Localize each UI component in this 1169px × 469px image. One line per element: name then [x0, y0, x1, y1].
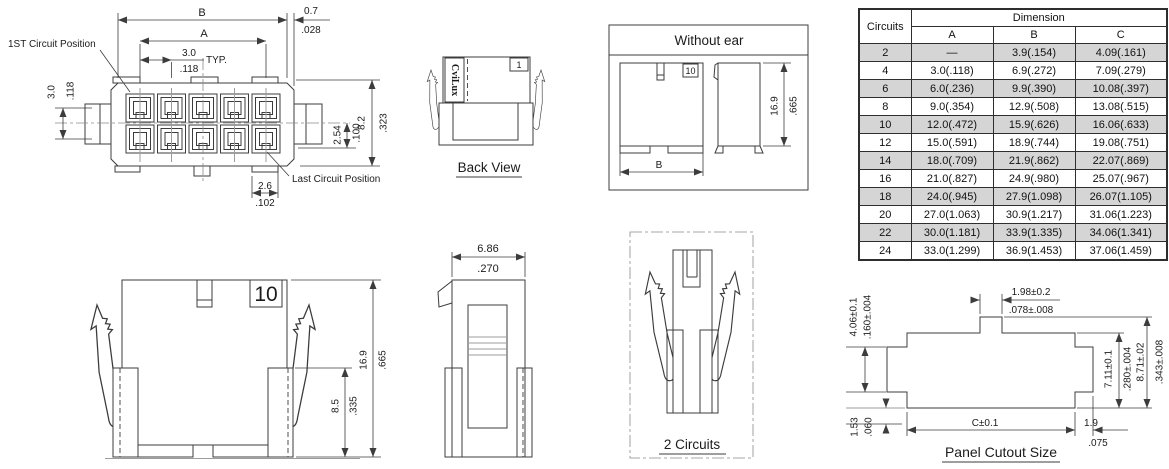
table-cell: 12 — [859, 134, 911, 152]
dim-edge-in: .028 — [301, 25, 321, 36]
table-cell: 34.06(1.341) — [1075, 224, 1167, 242]
table-cell: 31.06(1.223) — [1075, 206, 1167, 224]
lower-mm: 1.53 — [850, 417, 861, 437]
table-cell: 33.9(1.335) — [993, 224, 1075, 242]
col-header-circuits: Circuits — [859, 9, 911, 44]
table-cell: 16.06(.633) — [1075, 116, 1167, 134]
table-row: 1012.0(.472)15.9(.626)16.06(.633) — [859, 116, 1167, 134]
cavity-in: .102 — [255, 198, 275, 209]
table-row: 89.0(.354)12.9(.508)13.08(.515) — [859, 98, 1167, 116]
two-circuits-title: 2 Circuits — [664, 437, 721, 452]
side-profile-body — [438, 280, 532, 457]
front-view-body — [55, 58, 350, 182]
pitch-mm: 3.0 — [182, 48, 196, 59]
without-ear-title: Without ear — [674, 33, 744, 48]
table-cell: 25.07(.967) — [1075, 170, 1167, 188]
connector-datasheet-drawing: B 0.7 .028 A 3.0 .118 TYP. 3.0 .118 2.54… — [0, 0, 1169, 469]
table-cell: 24 — [859, 242, 911, 261]
table-cell: 6 — [859, 80, 911, 98]
col-header-b: B — [993, 27, 1075, 44]
table-cell: 26.07(1.105) — [1075, 188, 1167, 206]
table-cell: 27.9(1.098) — [993, 188, 1075, 206]
table-cell: 4.09(.161) — [1075, 44, 1167, 62]
table-cell: 4 — [859, 62, 911, 80]
table-cell: 12.9(.508) — [993, 98, 1075, 116]
table-cell: 27.0(1.063) — [911, 206, 993, 224]
table-row: 2027.0(1.063)30.9(1.217)31.06(1.223) — [859, 206, 1167, 224]
front-with-ears-drawing: 10 8.5 .335 16.9 .665 — [55, 270, 405, 469]
pin10-label: 10 — [254, 283, 277, 306]
dim-b-label: B — [656, 160, 663, 171]
row-pitch-in: .118 — [66, 81, 77, 100]
table-cell: 21.9(.862) — [993, 152, 1075, 170]
table-cell: 13.08(.515) — [1075, 98, 1167, 116]
table-cell: 3.9(.154) — [993, 44, 1075, 62]
height-in: .323 — [379, 113, 390, 133]
height-in: .665 — [789, 96, 800, 116]
table-cell: 24.0(.945) — [911, 188, 993, 206]
first-circuit-label: 1ST Circuit Position — [8, 39, 96, 50]
lower-in: .060 — [864, 417, 875, 437]
dim-edge-mm: 0.7 — [304, 6, 318, 17]
back-view-body: CviLux 1 — [426, 57, 546, 145]
table-cell: 20 — [859, 206, 911, 224]
col-header-a: A — [911, 27, 993, 44]
table-cell: 18 — [859, 188, 911, 206]
table-cell: 24.9(.980) — [993, 170, 1075, 188]
table-cell: 2 — [859, 44, 911, 62]
table-cell: — — [911, 44, 993, 62]
panel-cutout-dimensions: 1.98±0.2 .078±.008 4.06±0.1 .160±.004 1.… — [846, 287, 1166, 449]
notch-in: .160±.004 — [863, 294, 874, 339]
side-profile-dimensions: 6.86 .270 — [452, 243, 525, 277]
table-cell: 12.0(.472) — [911, 116, 993, 134]
inner-h-in: .280±.004 — [1123, 346, 1134, 391]
front-with-ears-body: 10 — [87, 280, 360, 459]
table-header-row: Circuits Dimension — [859, 9, 1167, 27]
brand-logo: CviLux — [449, 64, 460, 96]
table-row: 1418.0(.709)21.9(.862)22.07(.869) — [859, 152, 1167, 170]
table-row: 2433.0(1.299)36.9(1.453)37.06(1.459) — [859, 242, 1167, 261]
table-cell: 36.9(1.453) — [993, 242, 1075, 261]
table-cell: 6.9(.272) — [993, 62, 1075, 80]
right-in: .075 — [1088, 438, 1108, 449]
pitch-typ: TYP. — [206, 55, 227, 66]
width-c: C±0.1 — [972, 418, 999, 429]
tab-in: .078±.008 — [1009, 305, 1054, 316]
height-in: .665 — [378, 350, 389, 370]
table-row: 1215.0(.591)18.9(.744)19.08(.751) — [859, 134, 1167, 152]
dimension-table: Circuits Dimension A B C 2—3.9(.154)4.09… — [858, 8, 1168, 261]
table-cell: 30.0(1.181) — [911, 224, 993, 242]
table-cell: 6.0(.236) — [911, 80, 993, 98]
table-cell: 9.0(.354) — [911, 98, 993, 116]
inner-height-mm: 8.5 — [331, 399, 342, 413]
table-row: 1621.0(.827)24.9(.980)25.07(.967) — [859, 170, 1167, 188]
without-ear-dimensions: B 16.9 .665 — [620, 63, 800, 176]
without-ear-drawing: Without ear 10 B 16.9 .665 — [605, 20, 815, 195]
height-mm: 8.2 — [357, 116, 368, 130]
table-row: 2—3.9(.154)4.09(.161) — [859, 44, 1167, 62]
pitch-in: .118 — [180, 64, 199, 75]
col-header-c: C — [1075, 27, 1167, 44]
table-cell: 18.9(.744) — [993, 134, 1075, 152]
table-cell: 10.08(.397) — [1075, 80, 1167, 98]
right-mm: 1.9 — [1084, 418, 1098, 429]
table-cell: 37.06(1.459) — [1075, 242, 1167, 261]
cavity-mm: 2.6 — [258, 181, 272, 192]
panel-cutout-title: Panel Cutout Size — [945, 444, 1057, 460]
table-cell: 15.9(.626) — [993, 116, 1075, 134]
back-view-title: Back View — [458, 160, 521, 175]
table-cell: 18.0(.709) — [911, 152, 993, 170]
row-offset-mm: 2.54 — [333, 125, 344, 145]
table-cell: 19.08(.751) — [1075, 134, 1167, 152]
table-cell: 3.0(.118) — [911, 62, 993, 80]
front-view-drawing: B 0.7 .028 A 3.0 .118 TYP. 3.0 .118 2.54… — [0, 0, 400, 240]
panel-cutout-drawing: 1.98±0.2 .078±.008 4.06±0.1 .160±.004 1.… — [815, 270, 1169, 469]
two-circuits-body — [641, 250, 744, 413]
width-in: .270 — [477, 263, 498, 275]
table-cell: 16 — [859, 170, 911, 188]
col-header-dimension: Dimension — [911, 9, 1167, 27]
table-cell: 7.09(.279) — [1075, 62, 1167, 80]
row-pitch-mm: 3.0 — [47, 85, 58, 99]
table-cell: 10 — [859, 116, 911, 134]
inner-height-in: .335 — [349, 396, 360, 416]
outer-h-in: .343±.008 — [1155, 339, 1166, 384]
two-circuits-drawing: 2 Circuits — [620, 225, 780, 469]
panel-cutout-outline — [887, 317, 1093, 408]
table-row: 2230.0(1.181)33.9(1.335)34.06(1.341) — [859, 224, 1167, 242]
width-mm: 6.86 — [477, 243, 498, 255]
outer-h-mm: 8.71±.02 — [1136, 342, 1147, 381]
dim-label-a: A — [200, 28, 208, 40]
without-ear-side — [714, 63, 763, 153]
table-cell: 15.0(.591) — [911, 134, 993, 152]
table-cell: 22.07(.869) — [1075, 152, 1167, 170]
front-view-dimensions: B 0.7 .028 A 3.0 .118 TYP. 3.0 .118 2.54… — [8, 6, 390, 209]
tab-mm: 1.98±0.2 — [1012, 287, 1051, 298]
last-circuit-label: Last Circuit Position — [292, 174, 380, 185]
side-profile-drawing: 6.86 .270 — [415, 240, 600, 469]
table-cell: 9.9(.390) — [993, 80, 1075, 98]
back-view-drawing: CviLux 1 Back View — [400, 0, 595, 200]
table-cell: 14 — [859, 152, 911, 170]
table-row: 1824.0(.945)27.9(1.098)26.07(1.105) — [859, 188, 1167, 206]
dim-label-b: B — [198, 7, 205, 19]
without-ear-front: 10 — [620, 63, 703, 153]
table-row: 43.0(.118)6.9(.272)7.09(.279) — [859, 62, 1167, 80]
notch-mm: 4.06±0.1 — [849, 297, 860, 336]
pin1-label: 1 — [516, 60, 521, 70]
pin10-label: 10 — [685, 66, 695, 76]
table-cell: 8 — [859, 98, 911, 116]
table-cell: 30.9(1.217) — [993, 206, 1075, 224]
height-mm: 16.9 — [359, 350, 370, 370]
table-cell: 22 — [859, 224, 911, 242]
table-row: 66.0(.236)9.9(.390)10.08(.397) — [859, 80, 1167, 98]
table-cell: 33.0(1.299) — [911, 242, 993, 261]
table-cell: 21.0(.827) — [911, 170, 993, 188]
inner-h-mm: 7.11±0.1 — [1104, 350, 1115, 389]
height-mm: 16.9 — [770, 96, 781, 116]
